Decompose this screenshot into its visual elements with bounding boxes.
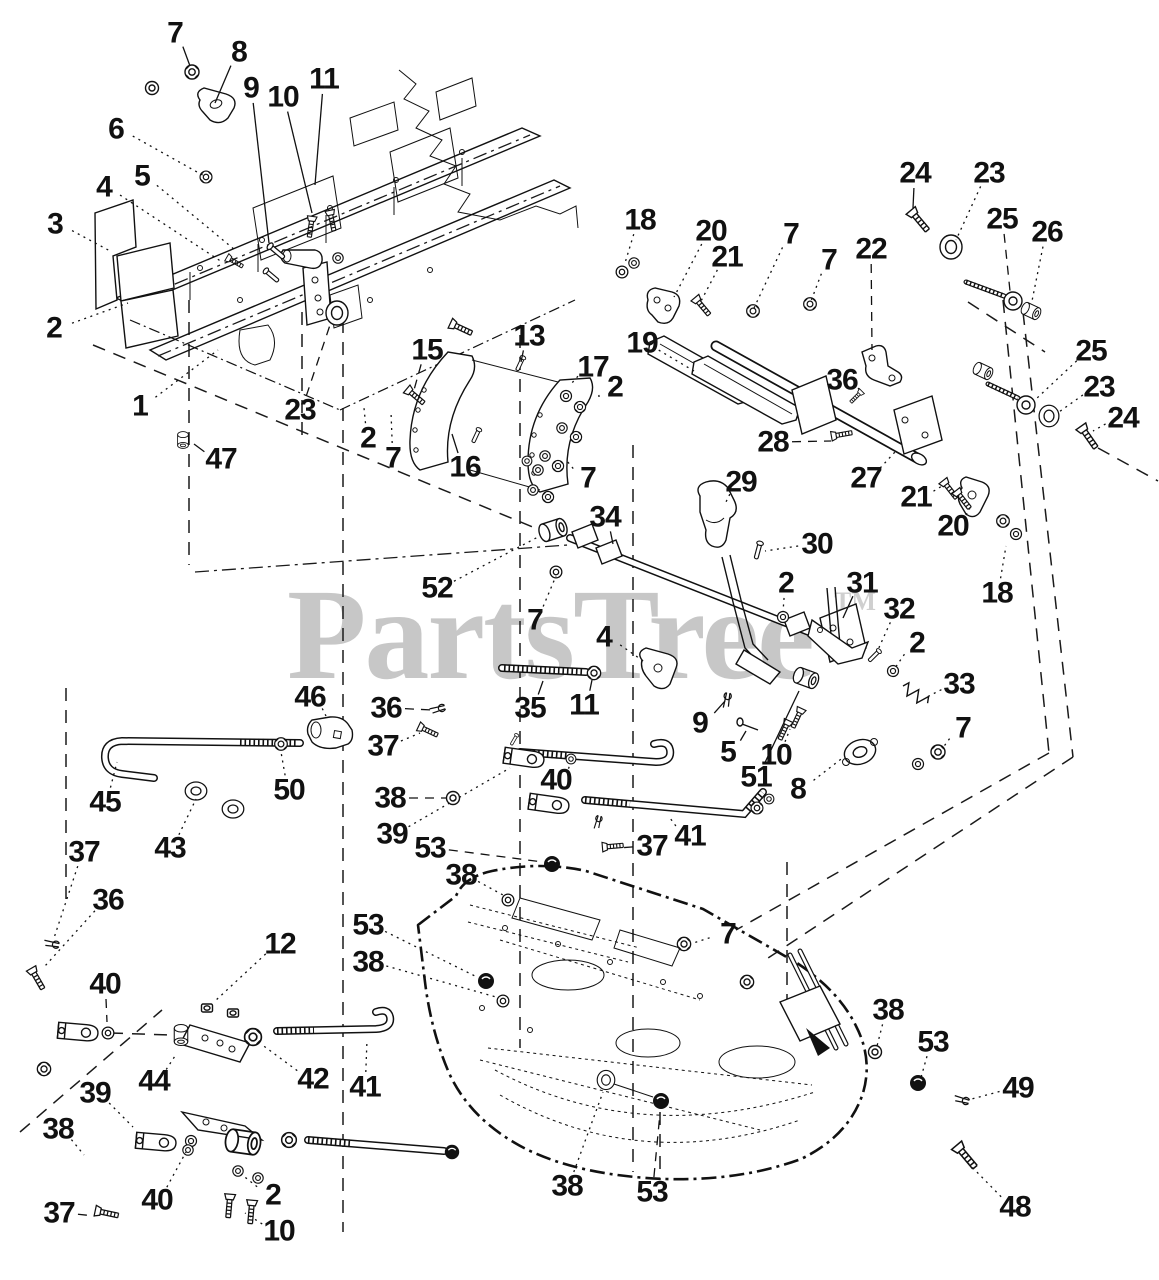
ring-part: [222, 800, 244, 818]
part-number-43: 43: [154, 832, 186, 865]
part-number-17: 17: [577, 351, 609, 384]
cotter-part: [593, 815, 603, 830]
part-number-53: 53: [414, 832, 446, 865]
part-number-38: 38: [445, 859, 477, 892]
pin-part: [262, 267, 280, 284]
washer-part: [629, 258, 639, 268]
clevis-part: [528, 793, 570, 814]
leader-line-38: [574, 1092, 603, 1172]
boltv-part: [906, 207, 932, 235]
part-number-36: 36: [826, 364, 858, 397]
part-number-34: 34: [589, 501, 622, 534]
leader-line-48: [968, 1163, 1001, 1197]
part-number-21: 21: [711, 241, 743, 274]
nut-part: [587, 666, 600, 679]
part-number-38: 38: [872, 994, 904, 1027]
nut-part: [574, 401, 585, 412]
leader-line-33: [927, 690, 941, 697]
washer-part: [1010, 528, 1021, 539]
bushing-part: [537, 517, 569, 543]
part-number-2: 2: [607, 371, 623, 404]
leader-line-38: [478, 881, 503, 895]
bushing-part: [971, 361, 994, 381]
part-number-36: 36: [370, 692, 402, 725]
cotter-part: [953, 1094, 970, 1105]
leader-line-15: [414, 364, 421, 390]
washer-part: [502, 894, 514, 906]
part-number-24: 24: [899, 157, 932, 190]
boltv-part: [417, 722, 440, 739]
part-number-40: 40: [540, 764, 572, 797]
washer-part: [497, 995, 509, 1007]
leader-line-36: [45, 911, 95, 966]
part-number-41: 41: [674, 820, 706, 853]
nut-part: [804, 298, 817, 311]
part-number-10: 10: [267, 81, 299, 114]
leader-line-7: [567, 461, 573, 469]
boltv-part: [789, 707, 806, 730]
part-number-38: 38: [374, 782, 406, 815]
leader-line-7: [690, 938, 710, 944]
sector-plates: [410, 352, 593, 492]
bellcrank-22: [862, 346, 902, 386]
part-number-53: 53: [917, 1026, 949, 1059]
boltv-part: [448, 318, 474, 338]
nut-part: [747, 305, 760, 318]
trunnion-46: [308, 717, 353, 749]
part-number-28: 28: [757, 426, 789, 459]
part-number-39: 39: [376, 818, 408, 851]
part-number-7: 7: [580, 462, 596, 495]
washer-part: [183, 1145, 193, 1155]
boltv-part: [94, 1205, 119, 1220]
nut-part: [200, 171, 212, 183]
part-number-51: 51: [740, 761, 772, 794]
part-number-2: 2: [360, 422, 376, 455]
part-number-33: 33: [943, 668, 975, 701]
part-number-11: 11: [309, 63, 339, 96]
part-number-5: 5: [134, 160, 150, 193]
disc-part: [1039, 405, 1059, 427]
parts-diagram-page: PartsTree TM: [0, 0, 1159, 1280]
part-number-21: 21: [900, 481, 932, 514]
washer-part: [522, 456, 532, 466]
leader-line-11: [315, 94, 322, 185]
leader-line-50: [281, 752, 285, 775]
part-number-2: 2: [265, 1179, 281, 1212]
part-number-5: 5: [720, 736, 736, 769]
leader-line-18: [1001, 546, 1006, 578]
nut-part: [677, 937, 690, 950]
part-number-50: 50: [273, 774, 305, 807]
leader-line-21: [700, 270, 717, 303]
leader-line-2: [895, 654, 904, 668]
part-number-4: 4: [96, 171, 113, 204]
deck-latch-assembly: [780, 951, 846, 1056]
leader-line-47: [194, 444, 204, 452]
part-number-22: 22: [855, 233, 887, 266]
part-number-36: 36: [92, 884, 124, 917]
washer-part: [528, 485, 538, 495]
part-number-10: 10: [263, 1215, 295, 1248]
leader-line-20: [674, 244, 702, 297]
left-linkage: [105, 717, 353, 778]
part-number-25: 25: [986, 203, 1018, 236]
eye-part: [1017, 396, 1035, 414]
washer-part: [102, 1027, 114, 1039]
leader-line-36: [405, 709, 432, 710]
part-number-38: 38: [551, 1170, 583, 1203]
leader-line-25: [1036, 361, 1077, 399]
nut-part: [552, 460, 563, 471]
pin-part: [867, 648, 882, 663]
nut-part: [282, 1133, 297, 1148]
part-number-48: 48: [999, 1191, 1031, 1224]
washer-part: [253, 1173, 263, 1183]
leader-line-53: [654, 1113, 660, 1177]
part-number-31: 31: [846, 567, 878, 600]
washer-part: [146, 82, 159, 95]
leader-line-22: [871, 264, 872, 350]
cam-plate-8: [198, 88, 235, 123]
part-number-7: 7: [783, 218, 799, 251]
disc-part: [326, 301, 348, 325]
part-number-20: 20: [937, 510, 969, 543]
washer-part: [557, 423, 567, 433]
washer-part: [566, 754, 576, 764]
part-number-8: 8: [790, 773, 806, 806]
washer-part: [533, 465, 543, 475]
part-number-32: 32: [883, 593, 915, 626]
pin-part: [470, 427, 482, 444]
nutdark-part: [445, 1145, 459, 1159]
zone-boundary-lines: [20, 300, 1158, 1232]
part-number-13: 13: [513, 320, 545, 353]
nut-part: [997, 515, 1010, 528]
leader-line-39: [109, 1103, 133, 1127]
part-number-41: 41: [349, 1071, 381, 1104]
part-number-23: 23: [1083, 371, 1115, 404]
part-number-7: 7: [720, 918, 736, 951]
nutdark-part: [478, 973, 494, 989]
part-number-6: 6: [108, 113, 124, 146]
leader-line-21: [933, 486, 942, 491]
part-number-23: 23: [973, 157, 1005, 190]
leader-line-7: [754, 247, 783, 308]
leader-line-43: [179, 799, 196, 835]
washer-part: [887, 665, 898, 676]
nut-part: [751, 802, 763, 814]
leader-line-32: [877, 622, 890, 652]
nutdark-part: [544, 856, 560, 872]
washer-part: [447, 792, 460, 805]
leader-line-37: [78, 1214, 95, 1216]
part-number-42: 42: [297, 1063, 329, 1096]
part-number-40: 40: [89, 968, 121, 1001]
part-number-30: 30: [801, 528, 833, 561]
leader-line-23: [1059, 395, 1083, 412]
part-number-46: 46: [294, 681, 326, 714]
leader-line-23: [956, 186, 981, 240]
washer-part: [869, 1046, 882, 1059]
part-number-7: 7: [821, 244, 837, 277]
washer-part: [764, 794, 774, 804]
sqnut-part: [228, 1009, 239, 1017]
part-number-9: 9: [692, 707, 708, 740]
exploded-parts-diagram: PartsTree TM: [0, 0, 1159, 1280]
clevis-part: [135, 1132, 176, 1151]
disc-part: [597, 1070, 615, 1089]
pin-part: [753, 540, 764, 559]
sqnut-part: [202, 1004, 213, 1012]
washer-part: [912, 758, 923, 769]
part-number-7: 7: [955, 712, 971, 745]
part-number-47: 47: [205, 443, 237, 476]
boltv-part: [831, 428, 853, 441]
part-number-8: 8: [231, 36, 247, 69]
part-number-3: 3: [47, 208, 63, 241]
part-number-7: 7: [167, 17, 183, 50]
leader-line-39: [409, 768, 510, 827]
nut-part: [740, 975, 753, 988]
eye-part: [1004, 292, 1022, 310]
leader-line-28: [792, 441, 831, 442]
pivot-link: [281, 250, 322, 268]
part-number-23: 23: [284, 394, 316, 427]
leader-line-23: [306, 322, 331, 396]
part-number-53: 53: [636, 1176, 668, 1209]
leader-line-40: [167, 1152, 186, 1187]
part-number-27: 27: [850, 462, 882, 495]
boltv-part: [952, 1141, 980, 1171]
part-number-39: 39: [79, 1077, 111, 1110]
leader-line-8: [814, 756, 845, 780]
watermark-text: PartsTree: [287, 563, 813, 707]
part-number-49: 49: [1002, 1072, 1034, 1105]
part-number-53: 53: [352, 909, 384, 942]
nut-part: [185, 65, 199, 79]
part-number-45: 45: [89, 786, 121, 819]
part-number-38: 38: [352, 946, 384, 979]
leader-line-37: [401, 733, 420, 741]
part-number-4: 4: [596, 621, 613, 654]
part-number-37: 37: [43, 1197, 75, 1230]
cotter-part: [43, 939, 59, 949]
boltv-part: [691, 294, 713, 317]
leader-line-7: [811, 274, 821, 301]
part-number-2: 2: [778, 567, 794, 600]
part-number-19: 19: [626, 327, 658, 360]
nut-part: [245, 1029, 262, 1046]
leader-line-41: [366, 1040, 367, 1072]
part-number-24: 24: [1107, 402, 1140, 435]
washer-part: [333, 253, 343, 263]
part-number-12: 12: [264, 928, 296, 961]
part-number-7: 7: [385, 442, 401, 475]
leader-line-24: [1093, 424, 1106, 431]
leader-line-27: [880, 452, 895, 468]
frame-assembly: [95, 70, 578, 410]
leader-line-24: [913, 188, 914, 208]
part-number-29: 29: [725, 466, 757, 499]
leader-line-7: [391, 412, 392, 443]
washer-part: [560, 390, 571, 401]
part-number-1: 1: [132, 390, 148, 423]
boltv-part: [26, 966, 47, 992]
leader-line-49: [968, 1092, 1000, 1100]
nut-part: [37, 1062, 50, 1075]
part-number-52: 52: [421, 572, 453, 605]
leader-line-10: [288, 112, 312, 213]
leader-line-5: [157, 185, 235, 250]
leader-line-42: [261, 1044, 297, 1071]
part-number-38: 38: [42, 1113, 74, 1146]
cam-plate-20: [647, 288, 680, 323]
part-number-37: 37: [636, 830, 668, 863]
part-number-7: 7: [527, 604, 543, 637]
leader-line-1: [155, 350, 218, 397]
washer-part: [616, 266, 628, 278]
ring-part: [185, 782, 207, 800]
part-number-2: 2: [46, 312, 62, 345]
washer-part: [540, 451, 550, 461]
nut-part: [275, 738, 288, 751]
part-number-25: 25: [1075, 335, 1107, 368]
clevis-part: [57, 1022, 98, 1041]
leader-line-26: [1032, 247, 1043, 301]
part-number-26: 26: [1031, 216, 1063, 249]
boltv-part: [225, 254, 245, 270]
nutdark-part: [653, 1093, 669, 1109]
washer-part: [777, 611, 788, 622]
boltv-part: [1076, 423, 1101, 451]
part-number-35: 35: [514, 692, 546, 725]
part-number-44: 44: [138, 1065, 171, 1098]
boltv-part: [602, 841, 624, 852]
disc-part: [940, 235, 962, 259]
leader-line-25: [1004, 234, 1010, 291]
nut-part: [542, 491, 553, 502]
lift-shaft-assembly: [647, 282, 1018, 517]
part-number-18: 18: [624, 204, 656, 237]
nut-part: [570, 431, 581, 442]
leader-line-12: [214, 954, 266, 1002]
part-number-11: 11: [569, 689, 599, 722]
part-number-40: 40: [141, 1184, 173, 1217]
part-number-9: 9: [243, 72, 259, 105]
pin-part: [509, 733, 519, 746]
leader-line-5: [740, 731, 746, 741]
part-number-18: 18: [981, 577, 1013, 610]
part-number-37: 37: [68, 836, 100, 869]
part-number-15: 15: [411, 334, 443, 367]
spring-part: [900, 681, 931, 708]
part-number-16: 16: [449, 451, 481, 484]
bushing-part: [178, 432, 189, 449]
part-number-2: 2: [909, 627, 925, 660]
hinge-bracket-44: [180, 1025, 250, 1062]
leader-line-7: [183, 47, 190, 66]
leader-line-30: [765, 546, 798, 551]
part-number-37: 37: [367, 730, 399, 763]
nut-part: [931, 745, 945, 759]
leader-line-40: [106, 999, 107, 1022]
nutdark-part: [910, 1075, 926, 1091]
boltv-part: [223, 1194, 236, 1218]
